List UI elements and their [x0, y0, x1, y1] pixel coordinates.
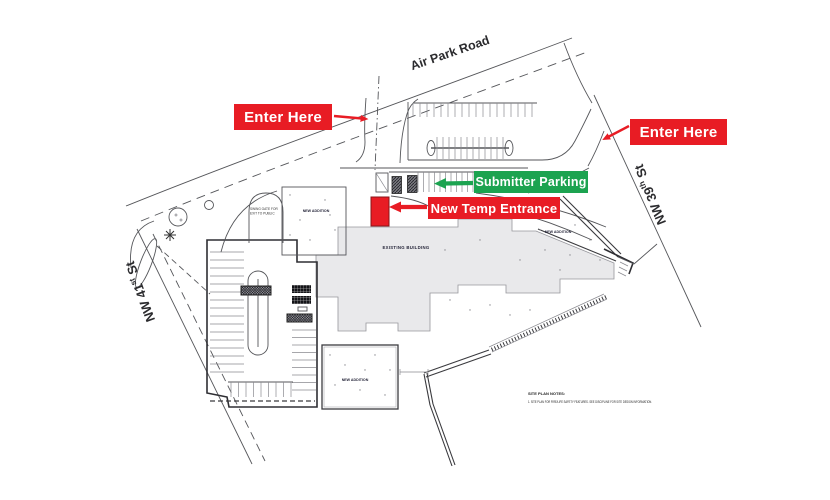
new-temp-entrance-text: New Temp Entrance: [431, 201, 558, 216]
site-plan-notes-line1: 1. SITE PLAN FOR FIRE/LIFE SAFETY FEATUR…: [528, 400, 652, 404]
new-temp-entrance-marker: [371, 197, 389, 226]
gate-note-line1: SWING GATE FOR: [250, 207, 278, 211]
west-new-addition: [221, 187, 346, 255]
site-plan-notes-title: SITE PLAN NOTES:: [528, 391, 565, 396]
site-plan-page: EXISTING BUILDING NEW ADDITION NEW ADDIT…: [0, 0, 830, 500]
enter-here-left-callout: Enter Here: [234, 104, 332, 130]
new-addition-west-label: NEW ADDITION: [303, 209, 330, 213]
new-addition-south-label: NEW ADDITION: [342, 378, 369, 382]
new-addition-east-label: NEW ADDITION: [545, 230, 572, 234]
enter-here-right-text: Enter Here: [640, 124, 718, 141]
enter-here-left-arrow: [334, 116, 362, 119]
existing-building-label: EXISTING BUILDING: [382, 245, 429, 250]
north-driveway: [356, 76, 418, 170]
retaining-walls: [424, 294, 607, 466]
tree-symbols: [164, 201, 214, 242]
gate-note-line2: EXIT TO PUBLIC: [250, 212, 275, 216]
west-parking-structure: [207, 240, 317, 407]
parked-car-symbol: [408, 176, 418, 193]
enter-here-right-callout: Enter Here: [630, 119, 727, 145]
enter-here-left-text: Enter Here: [244, 109, 322, 126]
air-park-road-lines: [126, 38, 587, 221]
parked-car-symbol: [392, 177, 402, 194]
nw-41st-street-lines: [130, 221, 265, 464]
shrub-asterisk-icon: [164, 229, 176, 241]
new-temp-entrance-callout: New Temp Entrance: [428, 197, 560, 219]
north-parking-lot: [408, 102, 591, 160]
submitter-parking-arrow: [444, 183, 473, 184]
submitter-parking-callout: Submitter Parking: [474, 171, 588, 193]
submitter-parking-text: Submitter Parking: [475, 175, 586, 189]
